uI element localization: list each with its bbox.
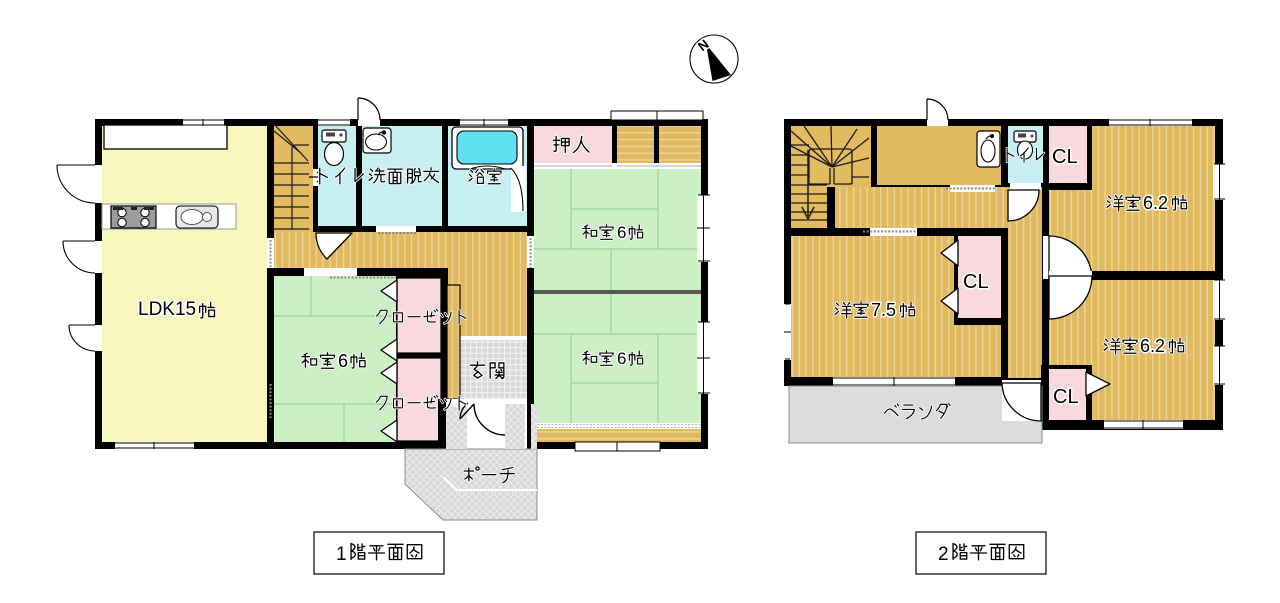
svg-text:1: 1 xyxy=(336,544,347,565)
svg-text:7.5: 7.5 xyxy=(871,300,896,320)
svg-text:CL: CL xyxy=(1053,386,1079,408)
svg-text:6: 6 xyxy=(338,351,348,371)
svg-text:2: 2 xyxy=(938,544,949,565)
svg-text:6: 6 xyxy=(617,349,626,368)
svg-text:CL: CL xyxy=(963,271,989,293)
svg-text:CL: CL xyxy=(1052,146,1078,168)
svg-text:6.2: 6.2 xyxy=(1143,193,1168,213)
svg-text:6.2: 6.2 xyxy=(1140,336,1165,356)
svg-text:LDK15: LDK15 xyxy=(138,299,196,320)
svg-text:6: 6 xyxy=(617,223,626,242)
